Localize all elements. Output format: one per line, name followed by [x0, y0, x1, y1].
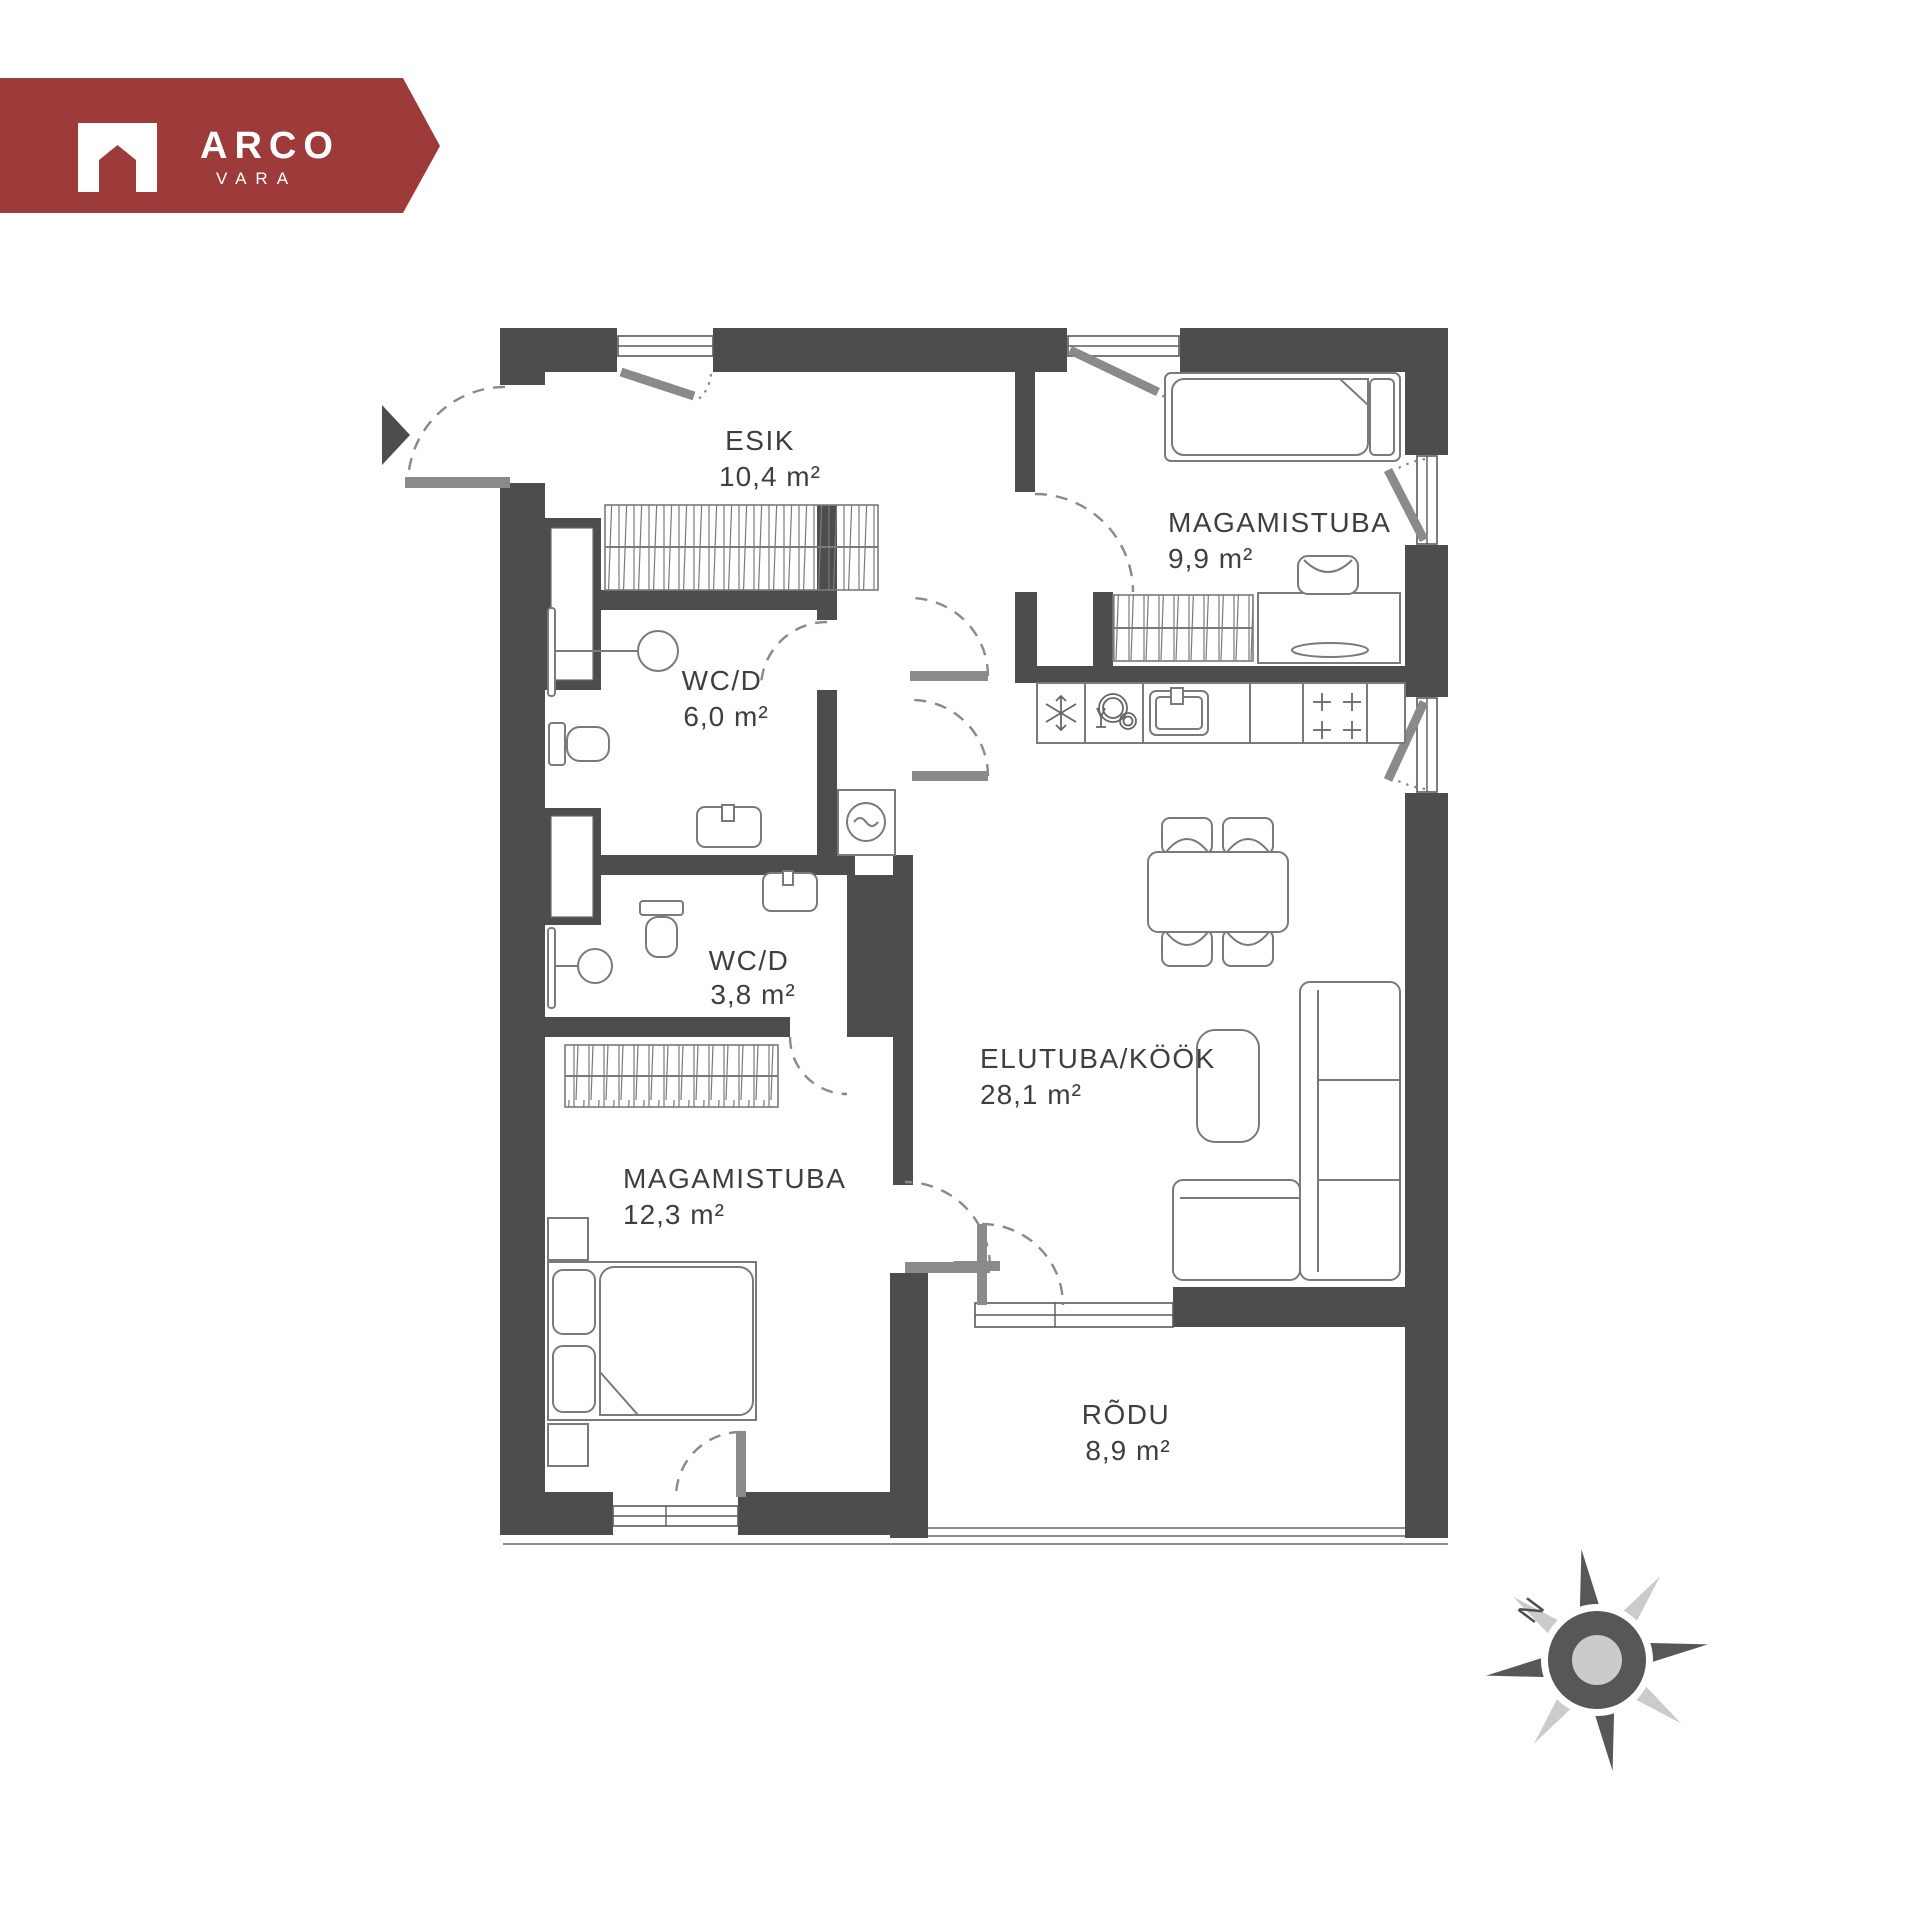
wardrobe-icon-bedroom12	[565, 1045, 778, 1107]
room-area-wcd1: 6,0 m²	[683, 701, 768, 732]
window-sash-bedroom-top	[1070, 350, 1177, 398]
entry-door	[382, 387, 510, 488]
window-sash-esik	[621, 372, 711, 400]
sink-icon-wc38	[763, 871, 817, 911]
door-wc6	[761, 622, 827, 688]
room-area-magamistuba1: 9,9 m²	[1168, 543, 1253, 574]
house-icon	[78, 123, 157, 192]
balcony-railing	[503, 1528, 1448, 1544]
room-area-magamistuba2: 12,3 m²	[623, 1199, 725, 1230]
door-bedroom-balcony	[676, 1431, 746, 1497]
door-wc38	[790, 1037, 847, 1094]
kitchen-counter	[1037, 683, 1405, 743]
door-bedroom-9	[1035, 494, 1133, 592]
floor-plan-canvas: ARCO VARA	[0, 0, 1920, 1920]
room-label-magamistuba2: MAGAMISTUBA	[623, 1163, 846, 1194]
floor-plan-page: ARCO VARA	[0, 0, 1920, 1920]
room-area-elutuba: 28,1 m²	[980, 1079, 1082, 1110]
entry-arrow-icon	[382, 405, 410, 465]
window-esik	[618, 336, 713, 356]
room-label-wcd2: WC/D	[709, 945, 790, 976]
room-label-magamistuba1: MAGAMISTUBA	[1168, 507, 1391, 538]
door-corridor-2	[912, 700, 988, 781]
room-label-elutuba: ELUTUBA/KÖÖK	[980, 1043, 1216, 1074]
shower-icon-wc38	[548, 928, 612, 1008]
sink-icon-wc6	[697, 805, 761, 847]
desk-chair-icon	[1298, 556, 1358, 594]
bed-icon-small	[1165, 373, 1400, 461]
sink-icon-kitchen	[1150, 688, 1208, 735]
room-area-esik: 10,4 m²	[719, 461, 821, 492]
window-bedroom-bottom	[613, 1506, 738, 1526]
door-balcony	[954, 1224, 1063, 1305]
toilet-icon-wc38	[640, 901, 683, 957]
room-area-rodu: 8,9 m²	[1085, 1435, 1170, 1466]
room-label-wcd1: WC/D	[682, 665, 763, 696]
logo-banner: ARCO VARA	[0, 78, 440, 213]
compass-icon: N	[1429, 1492, 1764, 1827]
wardrobe-icon-esik	[605, 505, 878, 590]
window-living-balcony	[975, 1303, 1173, 1327]
logo-sub-text: VARA	[216, 169, 297, 188]
dresser-icon	[1258, 593, 1400, 663]
logo-brand-text: ARCO	[200, 125, 340, 167]
washing-machine-icon	[838, 790, 895, 855]
bed-icon-double	[548, 1218, 756, 1466]
toilet-icon-wc6	[549, 723, 609, 765]
door-corridor-1	[910, 598, 988, 681]
room-label-rodu: RÕDU	[1082, 1399, 1170, 1430]
room-area-wcd2: 3,8 m²	[710, 979, 795, 1010]
dining-table-icon	[1148, 818, 1288, 966]
wardrobe-icon-bedroom9	[1113, 595, 1253, 661]
room-label-esik: ESIK	[725, 425, 795, 456]
